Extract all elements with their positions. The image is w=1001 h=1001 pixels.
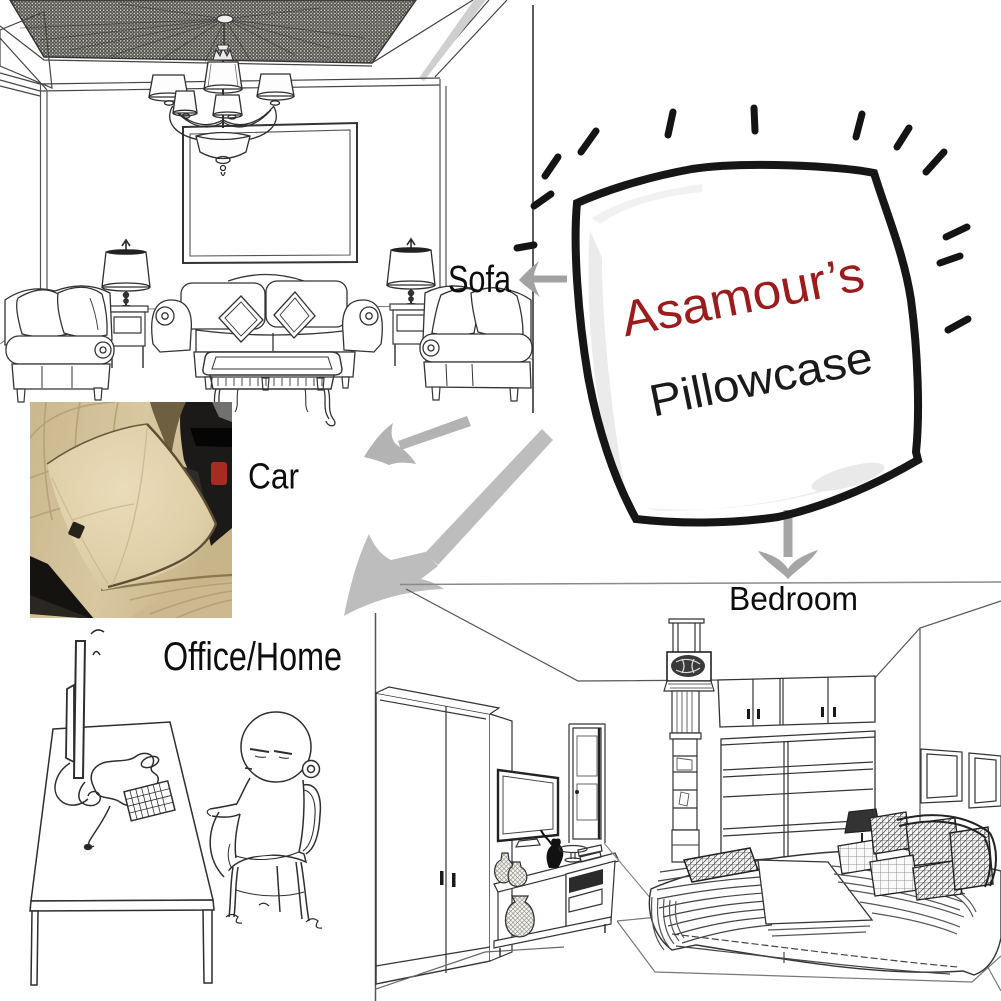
svg-text:Car: Car — [248, 456, 299, 497]
svg-text:Bedroom: Bedroom — [729, 580, 858, 617]
svg-text:Sofa: Sofa — [448, 259, 512, 301]
svg-text:Office/Home: Office/Home — [163, 635, 342, 679]
